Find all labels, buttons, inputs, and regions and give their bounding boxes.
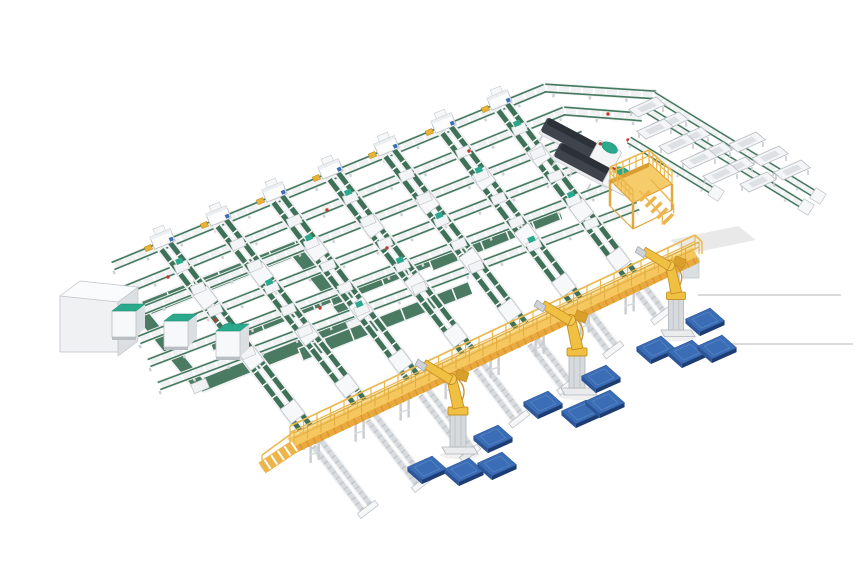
outfeed-branch — [627, 92, 826, 215]
facility-3d-render: .p-top{fill:#3a6db6;stroke:#2d5698;strok… — [0, 0, 860, 580]
scene-svg: .p-top{fill:#3a6db6;stroke:#2d5698;strok… — [0, 0, 860, 580]
